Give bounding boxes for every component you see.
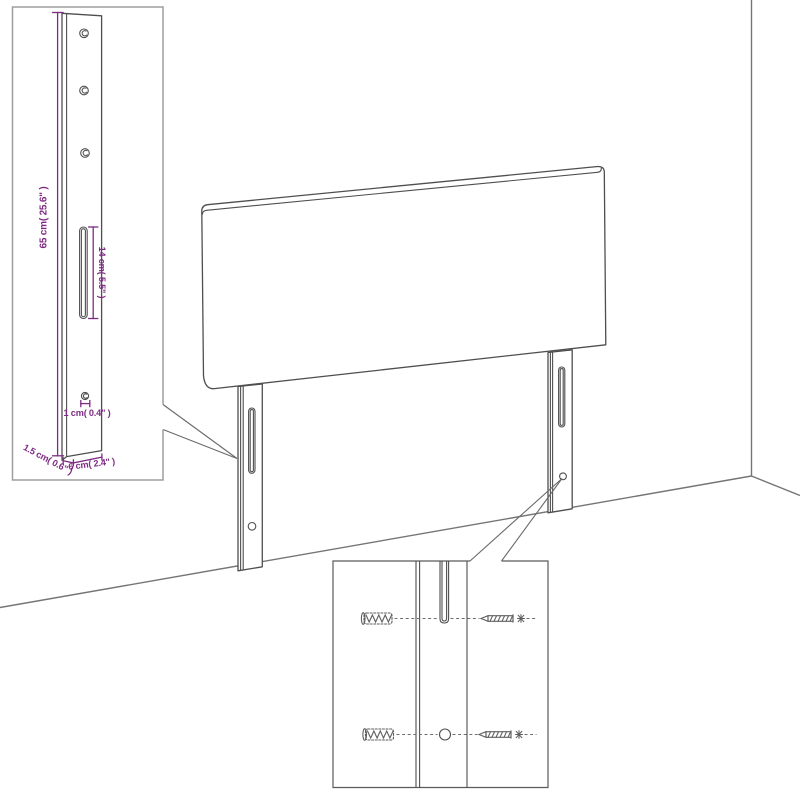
headboard-panel [202,167,606,389]
headboard-left-leg [238,384,262,571]
plug-top-flange [361,613,365,625]
mounting-hole [440,729,451,740]
height-dim-label: 65 cm( 25.6" ) [39,187,50,249]
callout-line-left [470,479,562,562]
screw-icon [481,615,525,623]
mounting-slot-inner [442,562,447,622]
mounting-detail-inset [333,561,548,788]
diagram-canvas: 65 cm( 25.6" ) 14 cm( 5.5" ) 1 cm( 0.4" … [0,0,800,800]
diagram-page: 65 cm( 25.6" ) 14 cm( 5.5" ) 1 cm( 0.4" … [0,0,800,800]
floor-line-left [0,476,752,608]
callout-line-right [502,479,563,562]
screw-bottom-threads [488,732,510,738]
screw-top-threads [490,616,512,622]
wall-plug-icon-2 [363,729,394,741]
dimension-height: 65 cm( 25.6" ) [39,13,64,456]
plug-top-hatch [366,615,392,622]
slot-dim-label: 14 cm( 5.5" ) [97,247,107,299]
screw-bottom-tip [479,732,486,738]
leg-detail-inset: 65 cm( 25.6" ) 14 cm( 5.5" ) 1 cm( 0.4" … [13,7,164,480]
hole-dim-label: 1 cm( 0.4" ) [64,408,111,418]
wall-plug-icon [361,613,392,625]
mounting-slot [440,562,449,624]
screw-top-head [513,615,525,623]
width-dim-label: 6 cm( 2.4" ) [68,456,116,472]
callout-line-lower [163,430,237,459]
plug-bottom-hatch [368,731,394,738]
callout-line-upper [163,405,237,459]
screw-icon-2 [479,731,523,739]
panel-outline [202,167,606,389]
mounting-bottom-row [363,729,537,741]
floor-line-right [752,476,800,496]
screw-top-tip [481,616,488,622]
plug-bottom-flange [363,729,367,741]
leg-inset-callout [163,405,237,459]
mounting-inset-callout [470,479,562,562]
screw-bottom-head [511,731,523,739]
